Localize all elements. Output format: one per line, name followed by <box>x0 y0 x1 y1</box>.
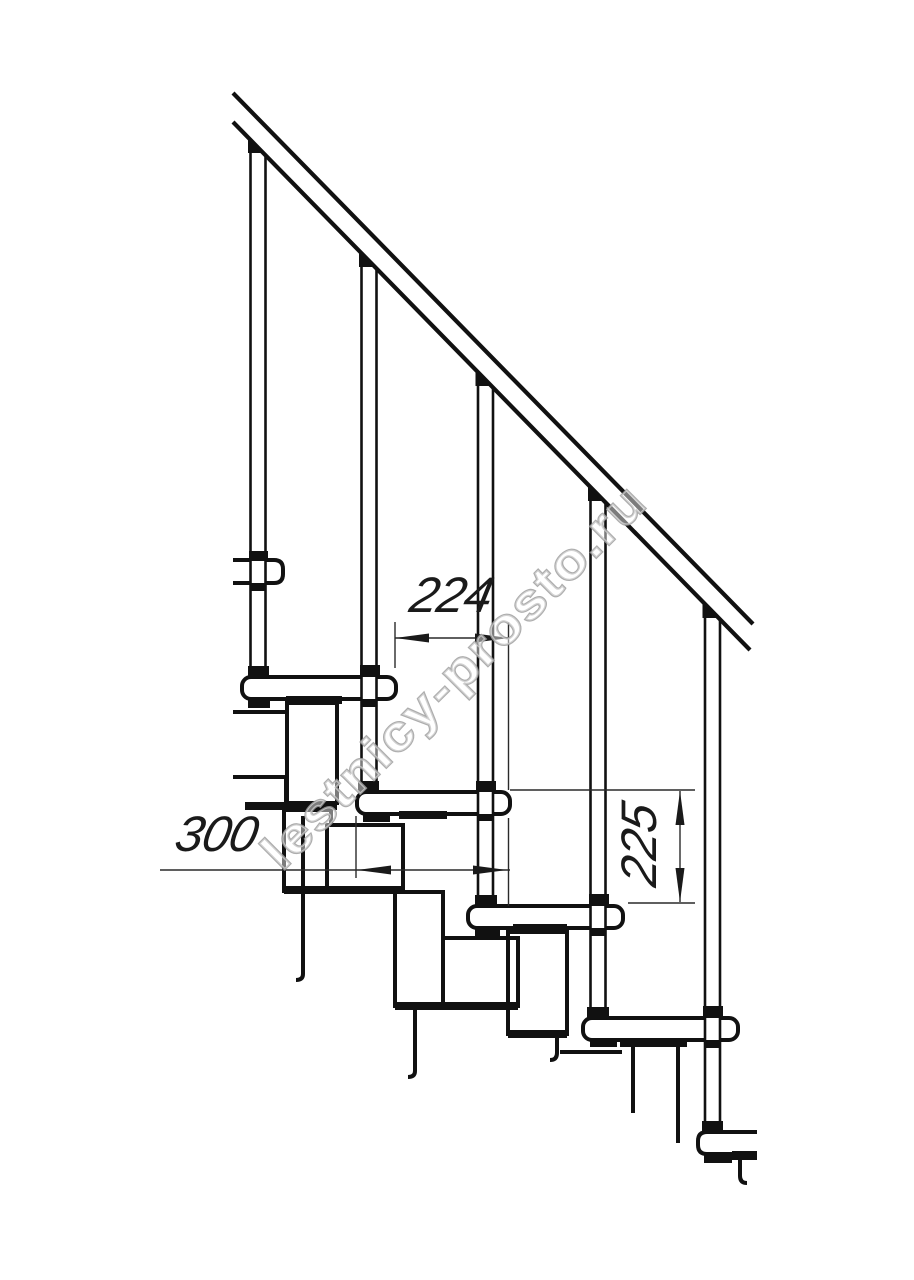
arrowhead-down <box>676 868 685 902</box>
collar <box>360 665 380 677</box>
collar <box>476 781 496 792</box>
module-joint-bar-3 <box>395 1002 518 1010</box>
module-joint-bar-2 <box>284 886 403 894</box>
module-hanger-line-2 <box>408 1010 415 1077</box>
baluster-2 <box>362 264 377 792</box>
clamp-foot <box>590 1038 617 1047</box>
clamp-foot <box>363 812 390 822</box>
arrowhead-up <box>676 791 685 825</box>
module-3-upper <box>327 825 403 889</box>
module-1-cut <box>233 712 288 803</box>
staircase-drawing-page: 224 300 225 lestnicy-prosto.ru <box>0 0 914 1280</box>
tread-6-cut <box>698 1132 757 1154</box>
clamp-band <box>732 1151 757 1160</box>
clamp-foot <box>248 698 270 708</box>
collar <box>475 895 497 906</box>
module-joint-bar-4 <box>508 1030 567 1038</box>
clamp-foot <box>704 1152 732 1163</box>
clamp-foot <box>475 926 500 936</box>
staircase-technical-drawing: 224 300 225 lestnicy-prosto.ru <box>0 0 914 1280</box>
collar <box>705 1040 721 1048</box>
collar <box>361 699 377 707</box>
collar <box>250 583 266 591</box>
clamp-band <box>513 924 567 932</box>
module-6-fade-step <box>740 1160 747 1183</box>
collar <box>702 1121 723 1132</box>
collar <box>478 814 494 821</box>
clamp-band <box>286 696 342 704</box>
collar <box>587 1007 609 1018</box>
arrowhead-left <box>395 634 429 643</box>
collar <box>249 551 268 561</box>
collar <box>589 894 609 906</box>
baluster-5 <box>705 614 720 1132</box>
collar <box>248 666 269 677</box>
clamp-band <box>620 1039 687 1047</box>
collar <box>590 928 606 936</box>
module-fade-fragment-1 <box>550 1038 557 1060</box>
baluster-1 <box>251 150 266 677</box>
clamp-band <box>399 811 447 819</box>
dimension-label-300: 300 <box>170 806 263 862</box>
module-3-lower <box>395 892 443 1006</box>
collar <box>703 1006 723 1018</box>
dimension-label-225: 225 <box>611 796 667 891</box>
